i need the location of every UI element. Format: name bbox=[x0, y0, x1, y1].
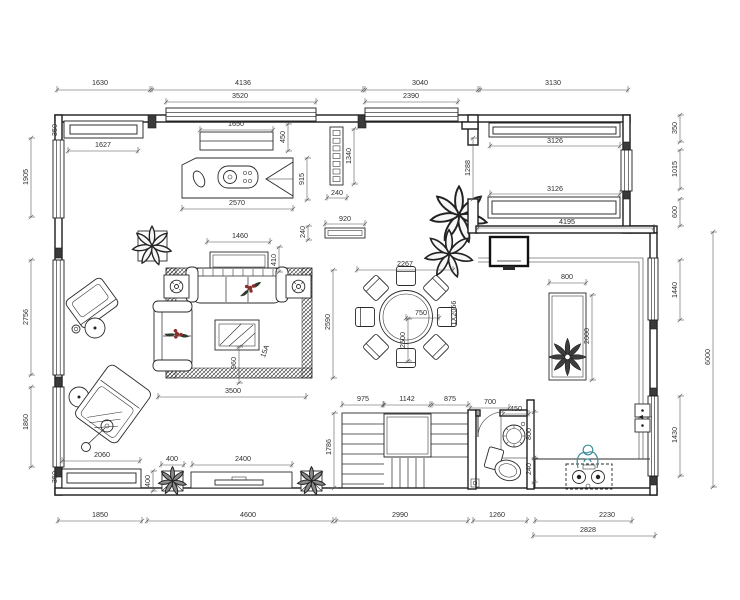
floor-plan-canvas: 1630413630403130352023901650162725702409… bbox=[0, 0, 740, 600]
svg-text:1786: 1786 bbox=[324, 439, 333, 455]
dim-1630: 1630 bbox=[55, 78, 152, 93]
svg-text:4136: 4136 bbox=[235, 78, 251, 87]
side-table-lamp-right bbox=[286, 275, 311, 298]
dim-2390: 2390 bbox=[363, 91, 460, 105]
svg-text:350: 350 bbox=[50, 124, 59, 136]
dim-3520: 3520 bbox=[164, 91, 318, 105]
dim-600: 600 bbox=[670, 197, 684, 228]
dim-3040: 3040 bbox=[363, 78, 480, 93]
tea-cup bbox=[72, 325, 80, 333]
svg-text:3126: 3126 bbox=[547, 184, 563, 193]
svg-text:700: 700 bbox=[484, 397, 496, 406]
dim-4600: 4600 bbox=[145, 510, 335, 524]
dim-6000: 6000 bbox=[703, 230, 717, 489]
svg-text:1460: 1460 bbox=[232, 231, 248, 240]
study-desk bbox=[182, 158, 293, 198]
dim-1430: 1430 bbox=[670, 394, 684, 478]
svg-text:4195: 4195 bbox=[559, 217, 575, 226]
svg-text:2267: 2267 bbox=[397, 259, 413, 268]
dim-1440: 1440 bbox=[670, 258, 684, 322]
svg-text:1440: 1440 bbox=[670, 282, 679, 298]
svg-text:6000: 6000 bbox=[703, 349, 712, 365]
dim-1142: 1142 bbox=[382, 394, 432, 408]
svg-text:3500: 3500 bbox=[225, 386, 241, 395]
planter-box-left bbox=[158, 467, 187, 495]
svg-text:450: 450 bbox=[510, 404, 522, 413]
svg-text:3040: 3040 bbox=[412, 78, 428, 87]
svg-text:2500: 2500 bbox=[398, 332, 407, 348]
dim-3126: 3126 bbox=[488, 136, 622, 149]
dim-350: 350 bbox=[50, 471, 59, 483]
floor-plan: 1630413630403130352023901650162725702409… bbox=[0, 0, 740, 600]
console-table bbox=[325, 228, 365, 238]
dim-1015: 1015 bbox=[670, 148, 684, 191]
coffee-table bbox=[215, 320, 259, 350]
dim-1260: 1260 bbox=[471, 510, 529, 524]
gas-stove bbox=[566, 464, 612, 489]
dim-1460: 1460 bbox=[205, 231, 272, 245]
round-side-table bbox=[85, 318, 105, 338]
svg-text:1015: 1015 bbox=[670, 161, 679, 177]
svg-text:3126: 3126 bbox=[547, 136, 563, 145]
dim-2756: 2756 bbox=[21, 258, 35, 377]
dim-1627: 1627 bbox=[66, 140, 140, 154]
svg-text:1630: 1630 bbox=[92, 78, 108, 87]
svg-text:3520: 3520 bbox=[232, 91, 248, 100]
dim-975: 975 bbox=[340, 394, 385, 408]
svg-text:1340: 1340 bbox=[344, 148, 353, 164]
svg-text:400: 400 bbox=[143, 475, 152, 487]
chaise-lounge bbox=[73, 363, 153, 445]
dim-2828: 2828 bbox=[531, 525, 657, 539]
rail-top-right-lower bbox=[488, 197, 620, 218]
svg-text:2756: 2756 bbox=[21, 309, 30, 325]
dim-1786: 1786 bbox=[324, 411, 338, 490]
island-flower-decor bbox=[549, 338, 587, 376]
svg-text:1142: 1142 bbox=[399, 394, 414, 403]
svg-text:450: 450 bbox=[278, 131, 287, 143]
svg-text:800: 800 bbox=[524, 428, 533, 440]
svg-text:240: 240 bbox=[331, 188, 343, 197]
staircase bbox=[342, 413, 468, 488]
dim-240: 240 bbox=[298, 224, 312, 242]
sofa-console-table bbox=[210, 252, 268, 270]
wall-shelf bbox=[200, 132, 273, 150]
dim-2230: 2230 bbox=[533, 510, 634, 524]
svg-text:350: 350 bbox=[50, 471, 59, 483]
dim-3130: 3130 bbox=[478, 78, 630, 93]
window-ext-1440 bbox=[648, 258, 658, 320]
potted-plant-study bbox=[132, 226, 172, 265]
bay-window-top-left bbox=[64, 121, 143, 138]
annotation-1X2066: 1X2066 bbox=[449, 301, 458, 326]
svg-text:1288: 1288 bbox=[463, 160, 472, 176]
svg-text:240: 240 bbox=[524, 463, 533, 475]
window-top-b bbox=[365, 108, 458, 121]
svg-text:1850: 1850 bbox=[92, 510, 108, 519]
svg-text:2060: 2060 bbox=[94, 450, 110, 459]
svg-text:2000: 2000 bbox=[582, 328, 591, 344]
sofa-main bbox=[186, 267, 288, 303]
window-seat-bottom bbox=[62, 469, 141, 488]
dim-350: 350 bbox=[670, 113, 684, 144]
svg-text:920: 920 bbox=[339, 214, 351, 223]
dim-960: 960 bbox=[229, 345, 243, 385]
svg-text:2570: 2570 bbox=[229, 198, 245, 207]
svg-text:410: 410 bbox=[269, 254, 278, 266]
dim-400: 400 bbox=[159, 454, 186, 468]
svg-text:2400: 2400 bbox=[235, 454, 251, 463]
svg-text:3130: 3130 bbox=[545, 78, 561, 87]
washbasin bbox=[503, 422, 525, 447]
svg-text:4600: 4600 bbox=[240, 510, 256, 519]
rail-top-right-upper bbox=[489, 123, 620, 137]
dim-700: 700 bbox=[468, 397, 511, 411]
dim-1850: 1850 bbox=[56, 510, 144, 524]
stair-landing bbox=[384, 414, 431, 457]
dim-920: 920 bbox=[323, 214, 367, 227]
annotation-15A: 15A bbox=[258, 343, 271, 358]
planter-box-right bbox=[297, 467, 326, 495]
svg-text:240: 240 bbox=[298, 226, 307, 238]
dim-2060: 2060 bbox=[60, 450, 142, 464]
toilet bbox=[482, 446, 525, 483]
svg-text:1650: 1650 bbox=[228, 119, 244, 128]
svg-text:350: 350 bbox=[670, 122, 679, 134]
dim-2570: 2570 bbox=[180, 198, 295, 212]
dim-2590: 2590 bbox=[323, 268, 337, 380]
svg-text:2990: 2990 bbox=[392, 510, 408, 519]
dim-800: 800 bbox=[547, 272, 588, 286]
window-left-c bbox=[53, 387, 64, 467]
dim-1860: 1860 bbox=[21, 385, 35, 469]
svg-text:875: 875 bbox=[444, 394, 456, 403]
dim-2990: 2990 bbox=[334, 510, 470, 524]
tv-set bbox=[215, 480, 263, 485]
svg-text:600: 600 bbox=[670, 206, 679, 218]
dim-450: 450 bbox=[278, 122, 292, 153]
side-table-lamp-left bbox=[164, 275, 189, 298]
svg-text:915: 915 bbox=[297, 173, 306, 185]
dim-240: 240 bbox=[325, 188, 349, 201]
dim-1905: 1905 bbox=[21, 136, 35, 219]
svg-text:1860: 1860 bbox=[21, 414, 30, 430]
dim-3126: 3126 bbox=[488, 184, 622, 197]
kitchen-island bbox=[549, 293, 587, 380]
svg-text:800: 800 bbox=[561, 272, 573, 281]
svg-text:400: 400 bbox=[166, 454, 178, 463]
wall-tv bbox=[490, 237, 528, 270]
window-left-b bbox=[53, 260, 64, 375]
dim-4136: 4136 bbox=[150, 78, 365, 93]
tv-console bbox=[191, 472, 292, 488]
svg-text:2828: 2828 bbox=[580, 525, 596, 534]
dim-2400: 2400 bbox=[190, 454, 294, 468]
svg-text:2230: 2230 bbox=[599, 510, 615, 519]
svg-text:2590: 2590 bbox=[323, 314, 332, 330]
svg-text:975: 975 bbox=[357, 394, 369, 403]
bathroom bbox=[471, 411, 527, 487]
dim-1340: 1340 bbox=[344, 127, 358, 186]
window-left-a bbox=[53, 140, 64, 218]
window-right-1015 bbox=[621, 150, 632, 191]
screen-divider bbox=[330, 127, 343, 185]
svg-text:1627: 1627 bbox=[95, 140, 111, 149]
person-figure bbox=[577, 445, 598, 468]
svg-text:1430: 1430 bbox=[670, 427, 679, 443]
svg-text:750: 750 bbox=[415, 308, 427, 317]
svg-text:1905: 1905 bbox=[21, 169, 30, 185]
dim-875: 875 bbox=[430, 394, 470, 408]
svg-text:960: 960 bbox=[229, 357, 238, 369]
dim-350: 350 bbox=[50, 124, 59, 136]
svg-text:1260: 1260 bbox=[489, 510, 505, 519]
dim-915: 915 bbox=[297, 156, 311, 202]
dim-3500: 3500 bbox=[156, 386, 308, 400]
svg-text:2390: 2390 bbox=[403, 91, 419, 100]
